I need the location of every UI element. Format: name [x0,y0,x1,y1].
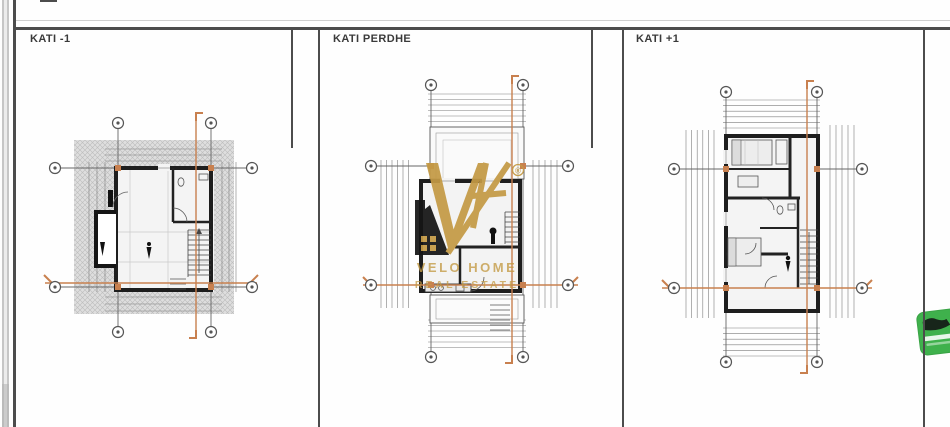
green-sticker-badge [915,308,950,357]
top-edge-tick [40,0,57,2]
drawing-sheet: KATI -1 KATI PERDHE KATI +1 [0,0,950,427]
page-edge-thumb [2,384,9,427]
velo-home-watermark-logo: ® VELO HOME REAL ESTATE [405,155,540,300]
registered-mark: ® [513,165,524,176]
frame-left-line [13,0,16,427]
panel-title-kati-perdhe: KATI PERDHE [333,33,411,45]
floorplan-kati-plus-1 [650,70,885,380]
faint-upper-line [13,20,950,21]
watermark-line1: VELO HOME [417,260,518,275]
panel-title-kati-minus-1: KATI -1 [30,33,70,45]
frame-top-line [13,27,950,30]
divider-2 [622,28,624,427]
floorplan-kati-minus-1 [40,100,270,350]
panel-title-kati-plus-1: KATI +1 [636,33,679,45]
building-walls [723,134,820,313]
divider-3 [923,28,925,427]
divider-1-stub [291,28,293,148]
svg-text:®: ® [515,167,521,176]
divider-1 [318,28,320,427]
page-edge-strip [2,0,9,427]
watermark-line2: REAL ESTATE [415,279,519,291]
sticker-glyph [922,316,950,332]
